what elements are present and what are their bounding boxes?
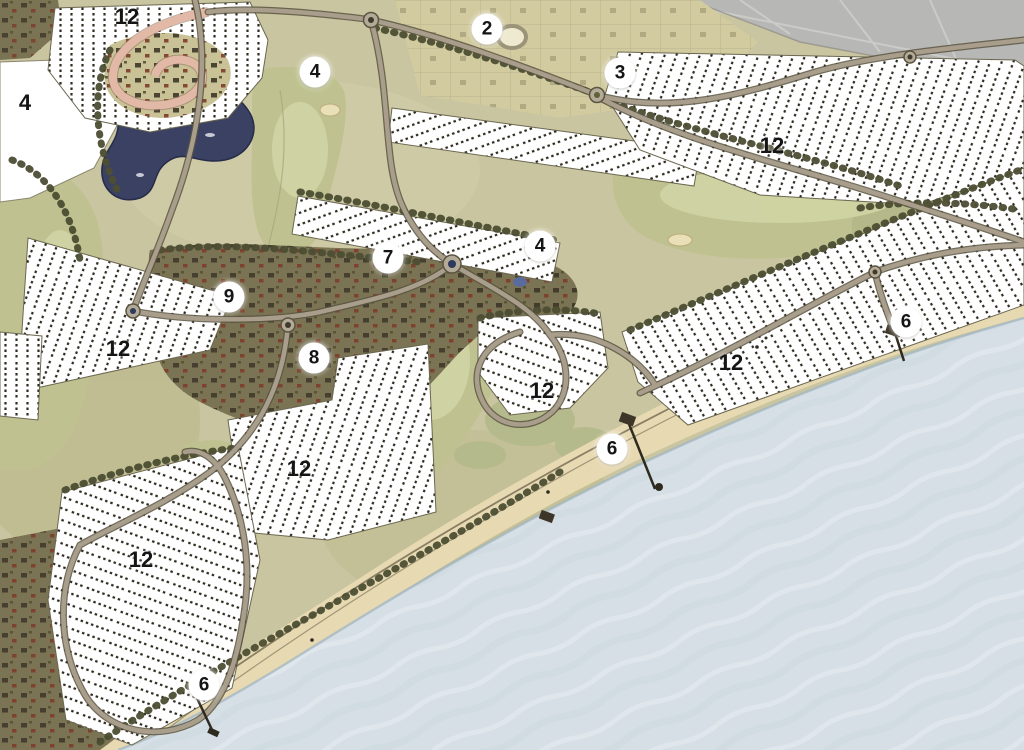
- roundabout: [281, 318, 295, 332]
- roundabout-fountain: [443, 255, 461, 273]
- roundabout: [904, 51, 916, 63]
- roundabout: [590, 88, 605, 103]
- pier-end-platform: [655, 483, 663, 491]
- masterplan-map: 1224341247961281212612126: [0, 0, 1024, 750]
- lots-cluster-west-edge: [0, 332, 42, 420]
- map-artwork: [0, 0, 1024, 750]
- roundabout: [364, 13, 379, 28]
- roundabout: [126, 304, 140, 318]
- roundabout: [869, 266, 881, 278]
- oval-feature: [498, 26, 526, 48]
- pool: [513, 277, 527, 287]
